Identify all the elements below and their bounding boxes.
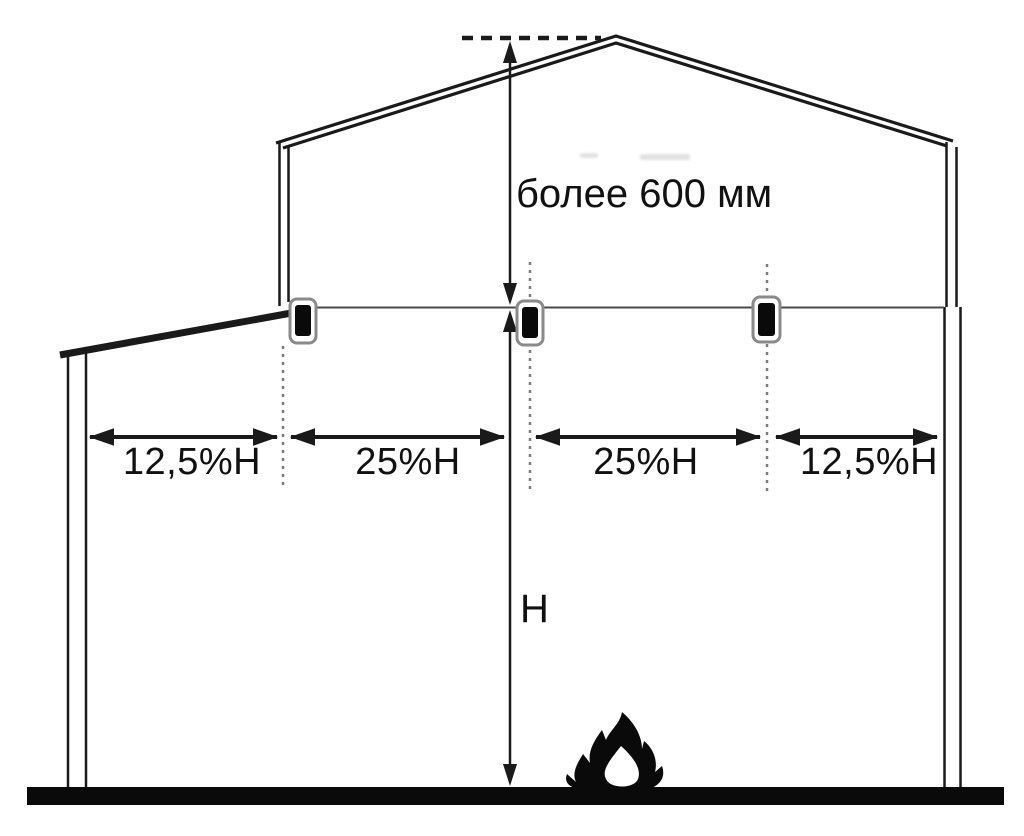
smoke-detector-icon: [517, 301, 543, 345]
spacing-label-4: 12,5%H: [800, 441, 938, 484]
spacing-label-1: 12,5%H: [123, 441, 261, 484]
annex-roof-line: [60, 312, 297, 355]
building-drawing: [0, 0, 1024, 836]
smoke-detector-icon: [290, 299, 316, 343]
arrow-up-icon: [503, 310, 517, 332]
ground-line: [27, 787, 1004, 805]
gable-roof-inner-line: [283, 43, 947, 148]
gable-roof-outer-line: [276, 36, 953, 143]
smoke-detector-icon: [753, 297, 780, 342]
spacing-label-3: 25%H: [593, 441, 699, 484]
arrow-down-icon: [503, 764, 517, 786]
erased-text-ghost: [580, 153, 598, 158]
apex-clearance-dimension: [503, 41, 517, 305]
height-dimension: [503, 310, 517, 786]
smoke-detectors: [290, 297, 780, 345]
arrow-up-icon: [503, 41, 517, 63]
arrow-down-icon: [503, 283, 517, 305]
flame-icon: [566, 712, 663, 789]
apex-clearance-label: более 600 мм: [516, 172, 772, 217]
erased-text-ghost: [640, 154, 690, 160]
diagram-canvas: более 600 мм 12,5%H 25%H 25%H 12,5%H H: [0, 0, 1024, 836]
spacing-label-2: 25%H: [355, 441, 461, 484]
building-height-label: H: [520, 587, 549, 632]
